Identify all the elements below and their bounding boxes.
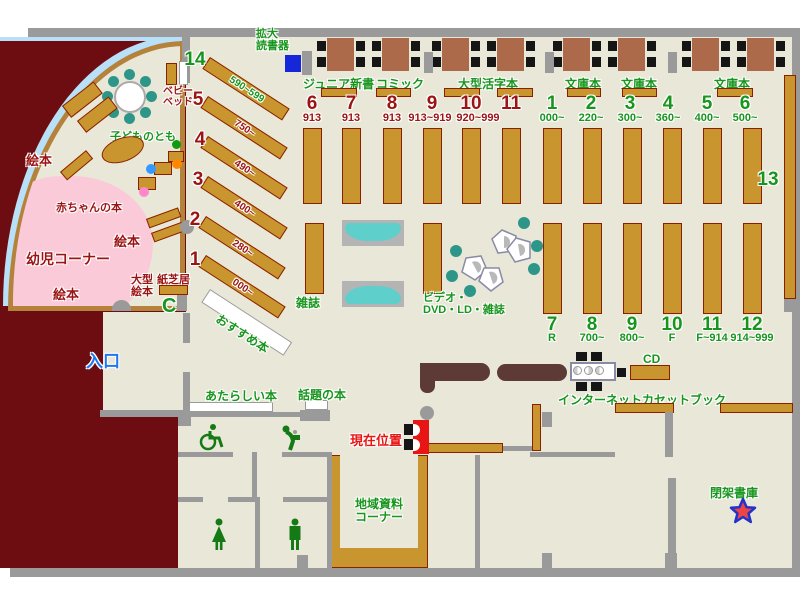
section-range: 500~ xyxy=(713,113,777,124)
wall-segment xyxy=(327,452,332,568)
wall-segment xyxy=(283,497,327,502)
internet-terminal xyxy=(595,366,604,375)
wall-segment xyxy=(100,410,188,417)
new-books-label: あたらしい本 xyxy=(205,387,277,404)
reading-table xyxy=(563,38,590,71)
outside-area-bottom xyxy=(103,417,178,568)
magnifier-desk xyxy=(302,51,312,75)
section-range: 920~999 xyxy=(446,113,510,124)
top-blue-trim xyxy=(0,37,186,41)
chair xyxy=(592,57,601,67)
bookshelf xyxy=(543,128,562,204)
chair xyxy=(487,41,496,51)
bottom-wall xyxy=(10,568,792,577)
chair xyxy=(553,41,562,51)
marker-detail xyxy=(404,424,413,435)
shelf-number-1: 1 xyxy=(165,250,225,269)
bookshelf xyxy=(502,128,521,204)
chair xyxy=(372,41,381,51)
wall-segment xyxy=(530,452,615,457)
marker-detail xyxy=(404,439,413,450)
reading-table xyxy=(327,38,354,71)
shelf-number-13: 13 xyxy=(738,170,798,189)
chair xyxy=(737,57,746,67)
wall-block xyxy=(665,553,677,568)
wall-segment xyxy=(178,497,203,502)
sofa xyxy=(345,286,401,304)
wall-block xyxy=(300,410,330,421)
reading-table xyxy=(497,38,524,71)
orange-stool xyxy=(172,159,182,169)
section-range: 914~999 xyxy=(720,333,784,344)
section-number: 6 xyxy=(715,94,775,113)
pillar xyxy=(420,406,434,420)
shelf-number-2: 2 xyxy=(165,210,225,229)
toddler-corner-label: 幼児コーナー xyxy=(26,249,110,269)
wall-segment xyxy=(252,452,257,497)
pink-stool xyxy=(139,187,149,197)
chair xyxy=(432,57,441,67)
kids-chair xyxy=(140,76,151,87)
wall-segment xyxy=(228,497,257,502)
reading-table xyxy=(692,38,719,71)
cd-label: CD xyxy=(643,352,660,366)
bookshelf xyxy=(342,128,361,204)
internet-terminal xyxy=(573,366,582,375)
chair xyxy=(526,41,535,51)
phone-wall-stub xyxy=(177,295,187,311)
kids-chair xyxy=(124,69,135,80)
magazines-label: 雑誌 xyxy=(296,294,320,311)
reading-table xyxy=(618,38,645,71)
chair xyxy=(721,41,730,51)
chair xyxy=(526,57,535,67)
chair xyxy=(592,41,601,51)
bookshelf xyxy=(703,223,722,314)
entrance-label: 入口 xyxy=(86,347,120,372)
wall-segment xyxy=(665,412,673,457)
wall-segment xyxy=(475,455,480,568)
picture-books-label: 絵本 xyxy=(53,284,79,303)
chair xyxy=(576,382,587,391)
star-icon xyxy=(729,497,757,525)
magazine-shelf xyxy=(305,223,324,294)
chair xyxy=(682,41,691,51)
wall-segment xyxy=(503,446,532,451)
chair xyxy=(471,41,480,51)
wall-block xyxy=(542,553,552,568)
wall-block xyxy=(297,555,308,568)
chair xyxy=(576,352,587,361)
chair xyxy=(776,57,785,67)
wall-block xyxy=(178,416,191,426)
service-counter xyxy=(497,364,567,381)
picture-books-label: 絵本 xyxy=(114,231,140,250)
bookshelf xyxy=(462,128,481,204)
table-partition xyxy=(545,52,554,73)
kids-chair xyxy=(108,76,119,87)
large-picture-books-label: 大型 絵本 xyxy=(131,275,153,298)
wall-segment xyxy=(183,372,190,412)
chair xyxy=(608,41,617,51)
male-toilet-icon xyxy=(286,518,304,552)
topical-books-label: 話題の本 xyxy=(298,386,346,403)
chair xyxy=(432,41,441,51)
bookshelf xyxy=(623,128,642,204)
chair xyxy=(487,57,496,67)
bookshelf xyxy=(663,128,682,204)
chair xyxy=(721,57,730,67)
chair xyxy=(471,57,480,67)
bookshelf xyxy=(663,223,682,314)
wall-segment xyxy=(178,452,233,457)
phone-icon: C xyxy=(162,295,176,318)
wall-shelf xyxy=(720,403,793,413)
chair xyxy=(647,57,656,67)
chair xyxy=(317,41,326,51)
wheelchair-icon xyxy=(196,423,224,451)
bookshelf xyxy=(423,223,442,294)
chair xyxy=(411,41,420,51)
chair xyxy=(372,57,381,67)
bookshelf xyxy=(743,128,762,204)
kids-chair xyxy=(140,107,151,118)
chair xyxy=(553,57,562,67)
cd-shelf xyxy=(630,365,670,380)
internet-terminal xyxy=(584,366,593,375)
bookshelf xyxy=(428,443,503,453)
picture-books-label: 絵本 xyxy=(26,150,52,169)
chair xyxy=(411,57,420,67)
bookshelf xyxy=(743,223,762,314)
kids-chair xyxy=(124,113,135,124)
reading-table xyxy=(442,38,469,71)
wall-segment xyxy=(255,497,260,568)
current-location-label: 現在位置 xyxy=(350,430,402,449)
shelf-number-14: 14 xyxy=(165,50,225,69)
bookshelf xyxy=(583,223,602,314)
kids-chair xyxy=(146,91,157,102)
av-carrel-cluster xyxy=(444,210,544,302)
kamishibai-shelf xyxy=(159,285,188,295)
table-partition xyxy=(668,52,677,73)
top-wall xyxy=(28,28,792,37)
chair xyxy=(356,41,365,51)
water-fountain-icon xyxy=(278,425,302,451)
magnifier-label: 拡大 読書器 xyxy=(256,29,289,52)
bookshelf xyxy=(583,128,602,204)
chair xyxy=(682,57,691,67)
shelf-number-5: 5 xyxy=(168,90,228,109)
service-counter-leg xyxy=(420,363,435,393)
bookshelf xyxy=(303,128,322,204)
female-toilet-icon xyxy=(210,518,228,552)
wall-segment xyxy=(188,412,300,417)
magnifier-station-icon xyxy=(285,55,301,72)
local-materials-label: 地域資料 コーナー xyxy=(340,498,418,523)
wall-segment xyxy=(183,313,190,343)
bookshelf xyxy=(423,128,442,204)
shelf-number-4: 4 xyxy=(170,130,230,149)
chair xyxy=(776,41,785,51)
wall-block xyxy=(542,412,552,427)
blue-stool xyxy=(146,164,156,174)
chair xyxy=(647,41,656,51)
bookshelf xyxy=(703,128,722,204)
library-floor-map: 子どものとも ベビー ベッド 絵本 絵本 絵本 赤ちゃんの本 幼児コーナー 大型… xyxy=(0,0,800,600)
bookshelf xyxy=(623,223,642,314)
chair xyxy=(591,352,602,361)
chair xyxy=(617,368,626,377)
chair xyxy=(608,57,617,67)
chair xyxy=(737,41,746,51)
baby-books-label: 赤ちゃんの本 xyxy=(56,199,122,215)
bookshelf xyxy=(383,128,402,204)
chair xyxy=(591,382,602,391)
bookshelf xyxy=(543,223,562,314)
table-partition xyxy=(424,52,433,73)
wall-segment xyxy=(282,452,332,457)
bookshelf xyxy=(532,404,541,451)
reading-table xyxy=(747,38,774,71)
wall-block xyxy=(784,299,796,312)
shelf-number-3: 3 xyxy=(168,170,228,189)
chair xyxy=(317,57,326,67)
chair xyxy=(356,57,365,67)
reading-table xyxy=(382,38,409,71)
